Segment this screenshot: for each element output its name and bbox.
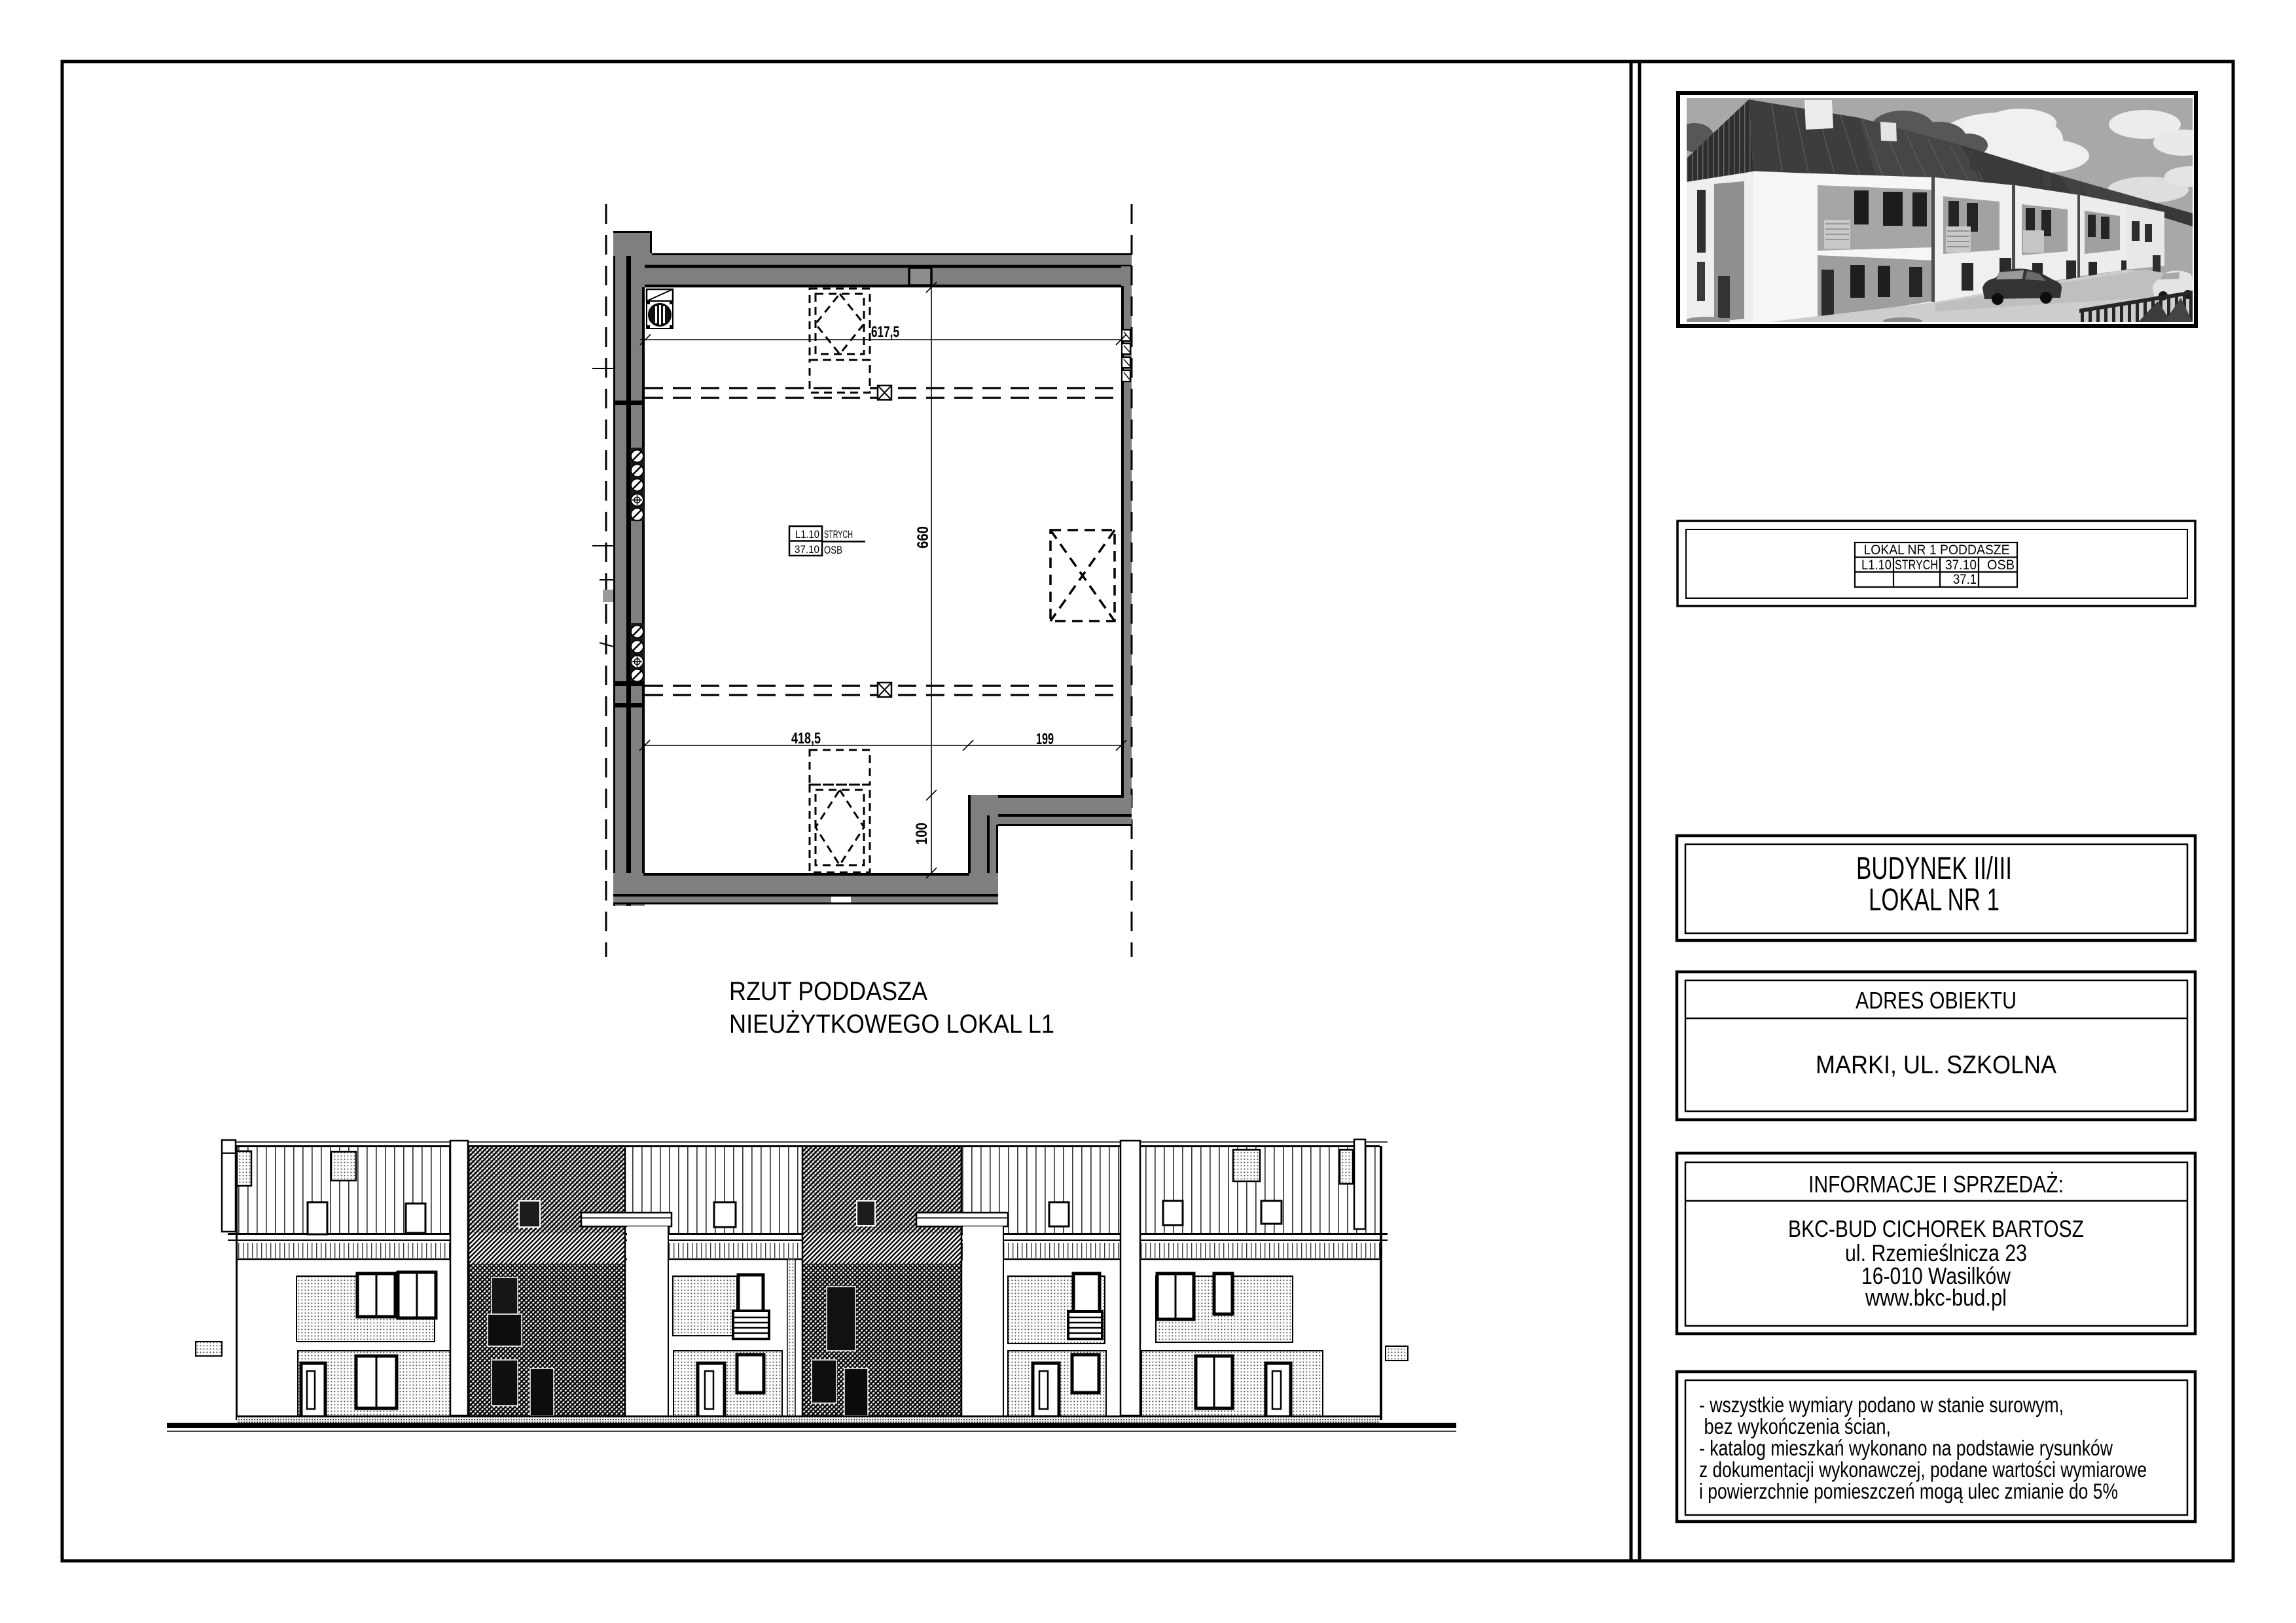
svg-text:MARKI, UL. SZKOLNA: MARKI, UL. SZKOLNA: [1816, 1051, 2056, 1079]
svg-text:37.10: 37.10: [795, 543, 819, 556]
svg-text:OSB: OSB: [824, 544, 842, 556]
svg-text:www.bkc-bud.pl: www.bkc-bud.pl: [1865, 1284, 2007, 1311]
svg-text:100: 100: [913, 823, 931, 845]
svg-text:RZUT PODDASZA: RZUT PODDASZA: [729, 977, 927, 1006]
svg-text:LOKAL NR 1 PODDASZE: LOKAL NR 1 PODDASZE: [1864, 543, 2010, 558]
svg-text:- katalog mieszkań wykonano na: - katalog mieszkań wykonano na podstawie…: [1699, 1436, 2113, 1460]
svg-text:L1.10: L1.10: [795, 528, 819, 541]
svg-text:37.1: 37.1: [1953, 572, 1977, 587]
svg-text:ADRES OBIEKTU: ADRES OBIEKTU: [1856, 987, 2017, 1014]
svg-text:STRYCH: STRYCH: [824, 528, 853, 541]
svg-text:L1.10: L1.10: [1861, 558, 1892, 573]
svg-text:OSB: OSB: [1987, 558, 2015, 573]
svg-text:37.10: 37.10: [1945, 558, 1977, 573]
svg-text:- wszystkie wymiary podano w s: - wszystkie wymiary podano w stanie suro…: [1699, 1393, 2064, 1417]
svg-text:z dokumentacji wykonawczej, po: z dokumentacji wykonawczej, podane warto…: [1699, 1457, 2147, 1482]
svg-text:i powierzchnie pomieszczeń mog: i powierzchnie pomieszczeń mogą ulec zmi…: [1699, 1479, 2118, 1503]
svg-text:660: 660: [914, 526, 932, 548]
svg-text:BUDYNEK II/III: BUDYNEK II/III: [1856, 851, 2012, 886]
svg-text:STRYCH: STRYCH: [1895, 558, 1938, 573]
svg-text:bez wykończenia ścian,: bez wykończenia ścian,: [1699, 1414, 1891, 1438]
svg-text:INFORMACJE I SPRZEDAŻ:: INFORMACJE I SPRZEDAŻ:: [1808, 1171, 2064, 1198]
svg-text:199: 199: [1036, 730, 1054, 748]
svg-text:BKC-BUD CICHOREK BARTOSZ: BKC-BUD CICHOREK BARTOSZ: [1788, 1215, 2084, 1242]
svg-text:418,5: 418,5: [791, 730, 821, 747]
svg-text:617,5: 617,5: [871, 323, 899, 341]
svg-text:LOKAL NR 1: LOKAL NR 1: [1869, 883, 2000, 918]
svg-text:NIEUŻYTKOWEGO LOKAL L1: NIEUŻYTKOWEGO LOKAL L1: [729, 1009, 1054, 1039]
